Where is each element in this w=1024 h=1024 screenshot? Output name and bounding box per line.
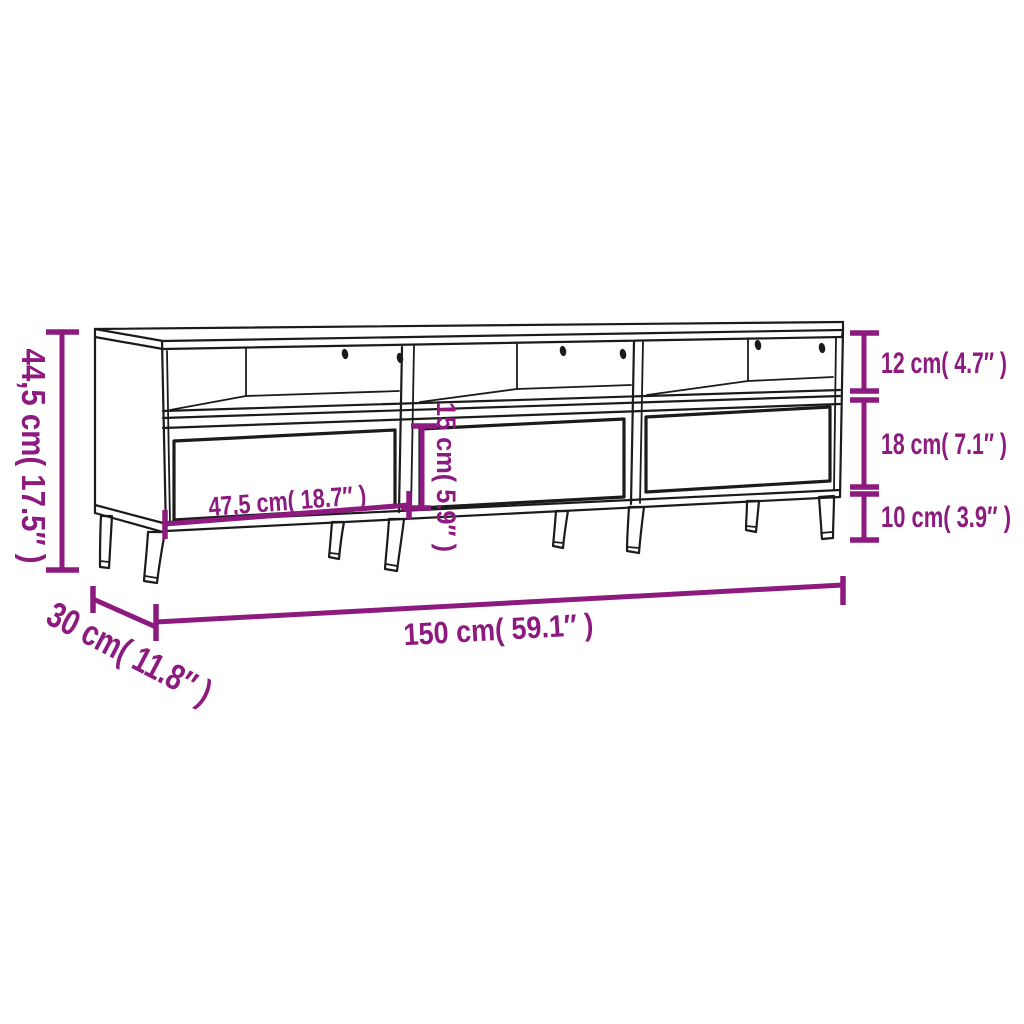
dimension-drawer-front [850,400,879,487]
dimension-label-top-compartment: 12 cm( 4.7″ ) [881,347,1007,380]
cabinet-leg [385,519,404,571]
dimension-top-compartment [850,333,879,391]
dimension-label-total-width: 150 cm( 59.1″ ) [403,607,595,653]
cabinet-drawing [95,322,843,583]
cable-hole [818,342,826,353]
dimension-label-drawer-front: 18 cm( 7.1″ ) [881,428,1007,461]
dimension-label-leg-height: 10 cm( 3.9″ ) [881,501,1011,534]
cabinet-top-board [95,322,843,349]
cabinet-leg [144,532,165,583]
cable-hole [341,348,349,359]
open-compartment-left [170,348,404,410]
cabinet-leg [100,516,112,568]
dimension-label-total-height: 44,5 cm( 17.5″ ) [15,349,52,564]
cable-hole [619,348,627,359]
dimension-diagram-page: 44,5 cm( 17.5″ ) 12 cm( 4.7″ ) 18 cm( 7.… [0,0,1024,1024]
dimension-label-drawer-inner-height: 15 cm( 5.9″ ) [431,402,461,552]
diagram-canvas: 44,5 cm( 17.5″ ) 12 cm( 4.7″ ) 18 cm( 7.… [0,0,1024,1024]
open-compartment-middle [420,344,631,402]
dimension-label-total-depth: 30 cm( 11.8″ ) [40,593,219,712]
dimension-label-drawer-width: 47,5 cm( 18.7″ ) [207,480,367,522]
cabinet-left-side-panel [95,329,170,532]
cabinet-leg [627,507,644,553]
dimension-leg-height [850,494,879,540]
cable-hole [559,345,567,356]
drawer-right [646,407,830,492]
open-compartment-right [647,338,833,395]
cable-hole [754,339,762,350]
